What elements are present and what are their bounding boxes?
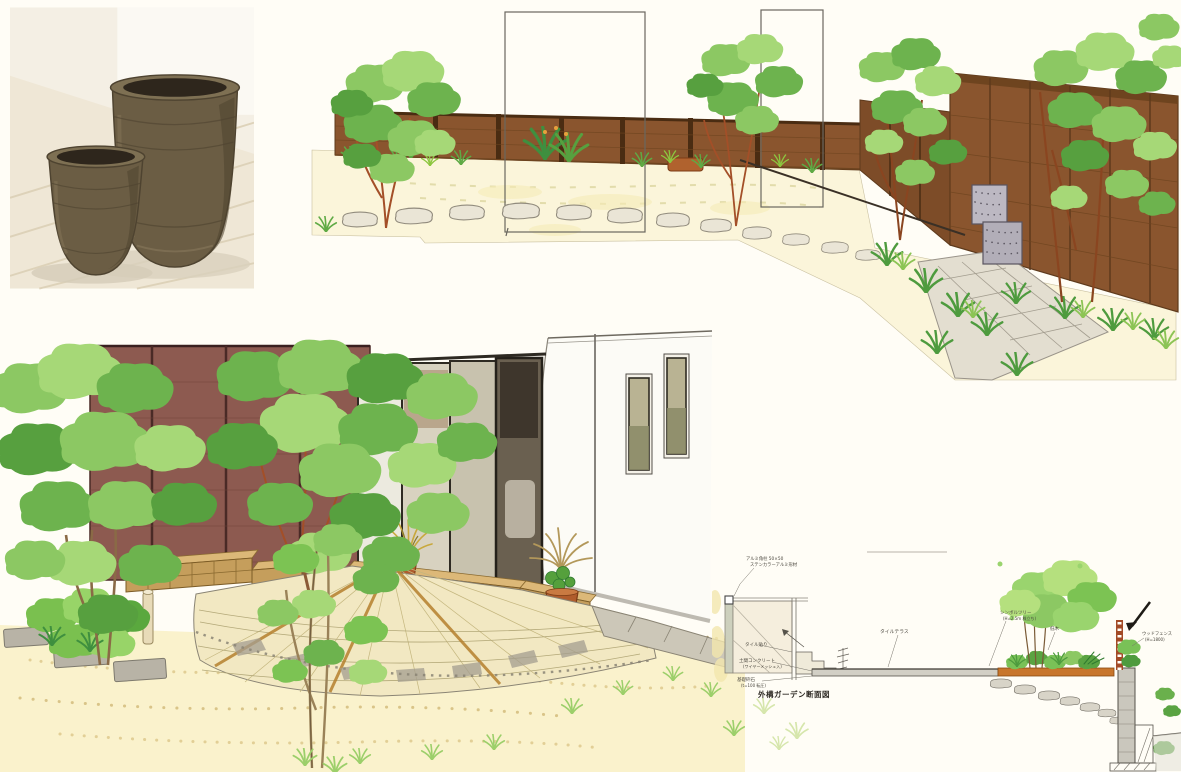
planting-bed xyxy=(1006,651,1104,669)
pots-photo xyxy=(10,6,254,290)
presentation-board: アルミ角柱 50×50 ステンカラーアルミ形材 タイル貼り 土間コンクリート (… xyxy=(0,0,1181,772)
section-labels: アルミ角柱 50×50 ステンカラーアルミ形材 タイル貼り 土間コンクリート (… xyxy=(737,555,1172,699)
direction-arrow xyxy=(1126,602,1150,631)
section-diagram: アルミ角柱 50×50 ステンカラーアルミ形材 タイル貼り 土間コンクリート (… xyxy=(712,540,1181,772)
garden-perspective xyxy=(300,0,1181,385)
grass-tufts xyxy=(754,698,808,750)
section-label-fence-sub: (H=1800) xyxy=(1145,637,1165,642)
section-label-post-sub: ステンカラーアルミ形材 xyxy=(750,561,798,568)
interior-sofa xyxy=(505,480,535,538)
section-label-slab-sub: (ワイヤーメッシュ入) xyxy=(743,664,782,669)
section-label-tree: シンボルツリー xyxy=(1000,609,1032,616)
courtyard-perspective xyxy=(0,330,745,772)
window xyxy=(664,354,689,458)
window xyxy=(626,374,652,474)
slab-section xyxy=(812,669,998,676)
post-marker xyxy=(725,596,733,604)
section-label-tile: タイル貼り xyxy=(745,641,768,648)
section-label-post: アルミ角柱 50×50 xyxy=(746,555,784,562)
pot-opening xyxy=(123,78,226,97)
section-label-base: 基礎砕石 xyxy=(737,676,755,683)
section-label-shrub: 低木 xyxy=(1050,625,1059,632)
interior-shadow xyxy=(500,362,538,438)
section-label-base-sub: (t=100 転圧) xyxy=(741,683,766,688)
section-label-slab: 土間コンクリート xyxy=(739,657,775,664)
section-label-tree-sub: (H=2.5m 株立ち) xyxy=(1003,615,1036,621)
section-title: 外構ガーデン断面図 xyxy=(758,689,830,699)
section-label-terrace: タイルテラス xyxy=(880,628,909,635)
stone-course xyxy=(990,679,1126,724)
pot-opening xyxy=(57,149,135,165)
section-label-fence: ウッドフェンス xyxy=(1142,630,1172,637)
